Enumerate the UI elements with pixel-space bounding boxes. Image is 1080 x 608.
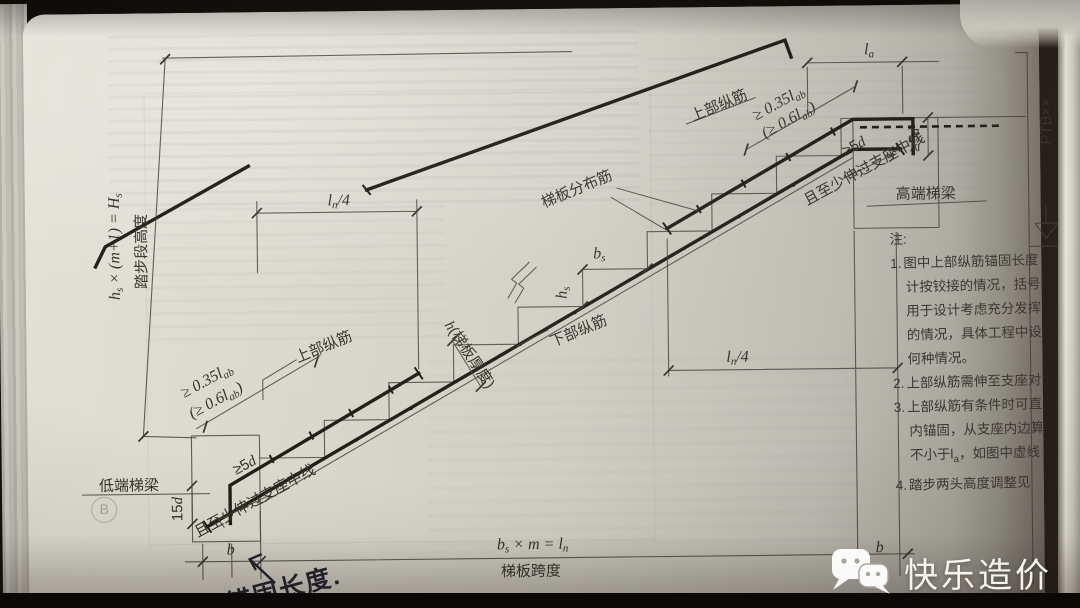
distribution-bar-leaders bbox=[611, 187, 699, 231]
b-dim-left: b bbox=[227, 541, 235, 558]
bs-dim: bs bbox=[593, 245, 605, 264]
slab-thickness-label: h(梯板厚度) bbox=[441, 317, 499, 391]
photo-of-drawing-page: hs × (m+1) = Hs 踏步段高度 ln/4 ln/4 la 上部纵筋 … bbox=[0, 0, 1080, 608]
top-bar-high bbox=[666, 119, 914, 229]
extend-support-label-low: 且至少伸过支座中线 bbox=[192, 461, 319, 541]
note-3-line: 不小于la，如图中虚线 bbox=[895, 440, 1054, 474]
notes-block: 注: 1.图中上部纵筋锚固长度 计按铰接的情况，括号 用于设计考虑充分发挥 的情… bbox=[889, 224, 1054, 498]
break-symbol bbox=[507, 262, 536, 303]
top-bar-label-low: 上部纵筋 bbox=[293, 328, 355, 367]
watermark-brand: 快乐造价 bbox=[904, 548, 1052, 597]
distribution-bar-label: 梯板分布筋 bbox=[539, 166, 615, 212]
d15-hook-low: 15d bbox=[169, 496, 186, 521]
flight-height-label: 踏步段高度 bbox=[133, 214, 151, 289]
top-bar-exploded-high bbox=[365, 40, 793, 190]
note-4: 4.踏步两头高度调整见 bbox=[895, 470, 1054, 498]
high-beam-label: 高端梯梁 bbox=[896, 185, 956, 203]
ge5d-bottom-bar-low: ≥5d bbox=[230, 452, 260, 479]
ptb-label: PTB×× bbox=[1038, 98, 1056, 145]
flight-height-formula: hs × (m+1) = Hs bbox=[106, 193, 126, 300]
note-1-line: 的情况，具体工程中设 bbox=[892, 320, 1051, 348]
circled-b-bleed-mark: B bbox=[91, 497, 117, 523]
atlas-page: hs × (m+1) = Hs 踏步段高度 ln/4 ln/4 la 上部纵筋 … bbox=[23, 3, 1046, 608]
span-label: 梯板跨度 bbox=[501, 562, 561, 581]
watermark: 快乐造价 bbox=[830, 547, 1052, 597]
wechat-icon bbox=[830, 547, 892, 597]
ln4-dim-left: ln/4 bbox=[327, 192, 350, 211]
low-beam-label: 低端梯梁 bbox=[99, 477, 159, 495]
rebar-lines bbox=[93, 38, 1008, 534]
ln4-dim-right: ln/4 bbox=[726, 349, 749, 368]
dashed-anchorage-bar bbox=[860, 126, 1004, 128]
top-bar-label-high: 上部纵筋 bbox=[688, 86, 750, 125]
la-dim: la bbox=[864, 41, 875, 60]
hs-dim: hs bbox=[554, 286, 573, 298]
span-formula: bs × m = ln bbox=[497, 536, 569, 556]
next-page-edge bbox=[1058, 0, 1080, 608]
